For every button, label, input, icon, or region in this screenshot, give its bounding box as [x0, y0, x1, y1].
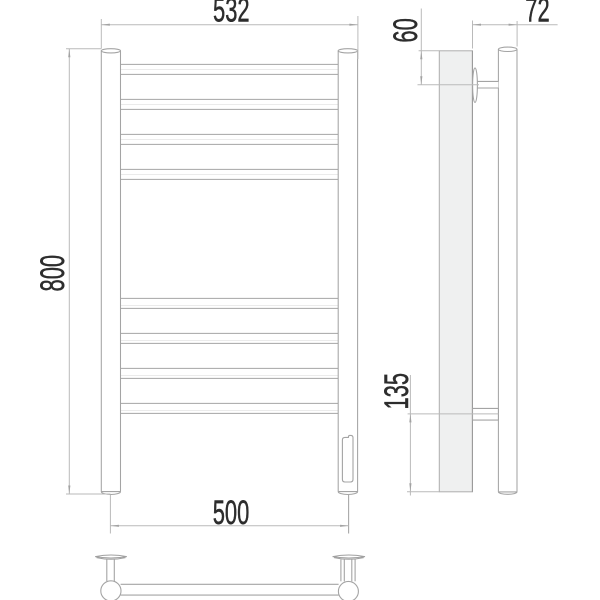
- svg-text:60: 60: [387, 18, 425, 42]
- svg-text:500: 500: [213, 494, 250, 532]
- svg-text:72: 72: [525, 0, 549, 30]
- svg-text:532: 532: [213, 0, 250, 30]
- svg-text:135: 135: [378, 373, 416, 410]
- svg-text:800: 800: [34, 255, 72, 292]
